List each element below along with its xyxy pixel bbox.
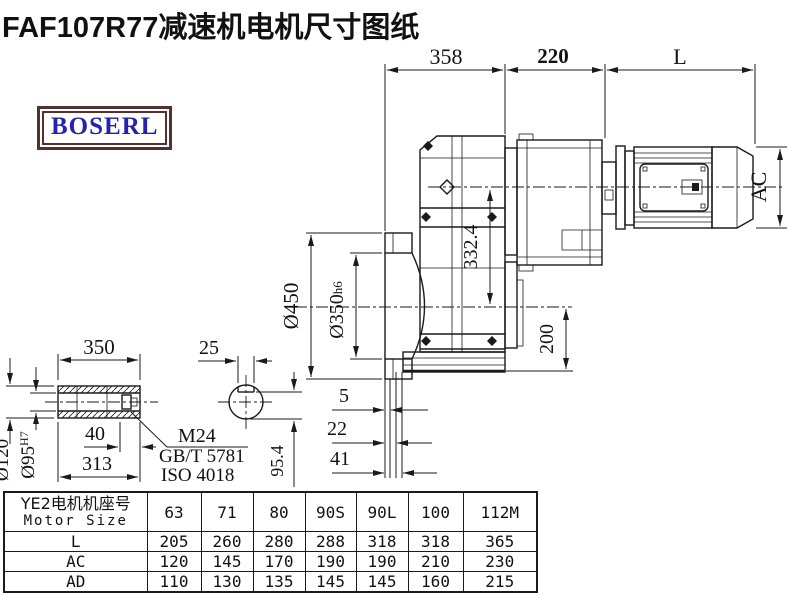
- shaft-end-view: [218, 375, 274, 430]
- col-header: 90S: [305, 492, 356, 532]
- col-header: 80: [253, 492, 305, 532]
- thread-callout: M24: [178, 425, 216, 447]
- table-cell: 260: [201, 532, 253, 552]
- top-dimensions: 358 220 L: [385, 44, 755, 231]
- dim-shaft-body-label: 313: [82, 453, 112, 475]
- table-cell: 210: [408, 552, 463, 572]
- row-label: AD: [4, 572, 147, 593]
- table-cell: 318: [356, 532, 408, 552]
- dim-offset1-label: 5: [339, 385, 349, 407]
- col-header: 100: [408, 492, 463, 532]
- hollow-shaft-view: 350 Ø120 Ø95H7 40 313 M24: [0, 335, 302, 487]
- table-cell: 145: [356, 572, 408, 593]
- motor-diameter-dimension: AC: [746, 147, 787, 228]
- table-row: AD 110 130 135 145 145 160 215: [4, 572, 537, 593]
- header-en: Motor Size: [5, 513, 147, 529]
- plug-icon: [421, 212, 431, 222]
- dim-base-label: 200: [536, 324, 558, 354]
- standard-callout-1: GB/T 5781: [159, 446, 245, 467]
- flange-dimensions: Ø450 Ø350h6: [279, 233, 382, 379]
- table-cell: 160: [408, 572, 463, 593]
- base-height-dimension: 200: [506, 309, 573, 371]
- table-cell: 170: [253, 552, 305, 572]
- col-header: 112M: [463, 492, 537, 532]
- table-cell: 280: [253, 532, 305, 552]
- table-cell: 190: [356, 552, 408, 572]
- table-row: L 205 260 280 288 318 318 365: [4, 532, 537, 552]
- plug-icon: [487, 336, 497, 346]
- row-label: AC: [4, 552, 147, 572]
- table-row: AC 120 145 170 190 190 210 230: [4, 552, 537, 572]
- input-adapter: [505, 134, 616, 271]
- col-header: 71: [201, 492, 253, 532]
- dim-axis-label: 332.4: [460, 225, 482, 270]
- table-cell: 230: [463, 552, 537, 572]
- table-cell: 365: [463, 532, 537, 552]
- table-cell: 145: [201, 552, 253, 572]
- table-cell: 215: [463, 572, 537, 593]
- dim-motor-diameter-label: AC: [746, 172, 771, 203]
- table-cell: 190: [305, 552, 356, 572]
- dim-adapter-label: 220: [537, 44, 569, 68]
- table-cell: 318: [408, 532, 463, 552]
- table-cell: 110: [147, 572, 201, 593]
- table-cell: 145: [305, 572, 356, 593]
- dim-flange-od-label: Ø450: [279, 283, 303, 330]
- table-cell: 135: [253, 572, 305, 593]
- drawing-sheet: FAF107R77减速机电机尺寸图纸 BOSERL: [0, 0, 800, 596]
- dim-shaft-length-label: 350: [83, 335, 115, 359]
- main-view: 358 220 L Ø450 Ø350h6 332.4: [279, 44, 787, 478]
- row-label: L: [4, 532, 147, 552]
- dim-keyway-label: 25: [199, 337, 219, 359]
- dim-bore-label: Ø95H7: [17, 431, 39, 478]
- col-header: 90L: [356, 492, 408, 532]
- dim-flange-pilot-label: Ø350h6: [326, 281, 348, 339]
- table-cell: 130: [201, 572, 253, 593]
- dim-shaft-od-label: Ø120: [0, 439, 13, 481]
- plug-icon: [423, 141, 433, 151]
- dim-offset2-label: 22: [327, 418, 347, 440]
- dim-offset3-label: 41: [330, 448, 350, 470]
- plug-icon: [487, 212, 497, 222]
- dim-key-height-label: 95.4: [267, 445, 287, 477]
- plug-icon: [421, 336, 431, 346]
- motor: [616, 146, 753, 229]
- col-header: 63: [147, 492, 201, 532]
- flange-offset-dimensions: 5 22 41: [327, 385, 437, 473]
- dim-thread-depth-label: 40: [85, 423, 105, 445]
- table-cell: 288: [305, 532, 356, 552]
- table-header-row: YE2电机机座号 Motor Size 63 71 80 90S 90L 100…: [4, 492, 537, 532]
- dim-overall-label: 358: [430, 44, 463, 69]
- header-cn: YE2电机机座号: [5, 495, 147, 513]
- table-header-cell: YE2电机机座号 Motor Size: [4, 492, 147, 532]
- standard-callout-2: ISO 4018: [161, 465, 234, 486]
- output-flange: [385, 233, 425, 379]
- dim-motor-length-label: L: [673, 44, 686, 69]
- table-cell: 120: [147, 552, 201, 572]
- table-cell: 205: [147, 532, 201, 552]
- motor-size-table: YE2电机机座号 Motor Size 63 71 80 90S 90L 100…: [3, 491, 538, 593]
